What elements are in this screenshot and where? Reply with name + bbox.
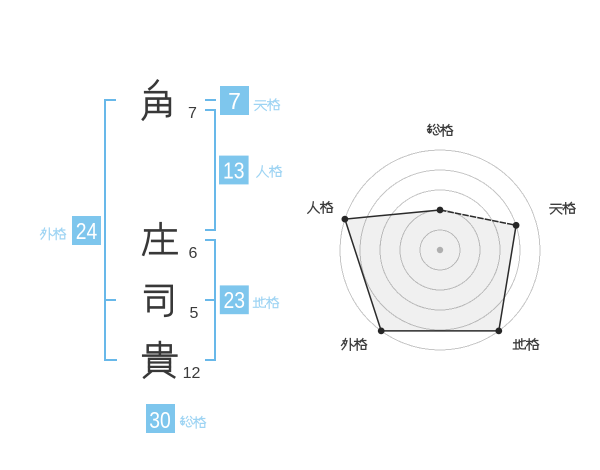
svg-text:7: 7 bbox=[188, 105, 197, 122]
svg-text:23: 23 bbox=[224, 287, 246, 313]
svg-text:30: 30 bbox=[149, 407, 171, 433]
svg-text:5: 5 bbox=[190, 305, 199, 322]
svg-text:12: 12 bbox=[183, 365, 201, 382]
svg-text:7: 7 bbox=[228, 88, 241, 114]
svg-text:6: 6 bbox=[189, 245, 198, 262]
svg-text:13: 13 bbox=[223, 157, 245, 183]
svg-text:24: 24 bbox=[76, 218, 98, 244]
